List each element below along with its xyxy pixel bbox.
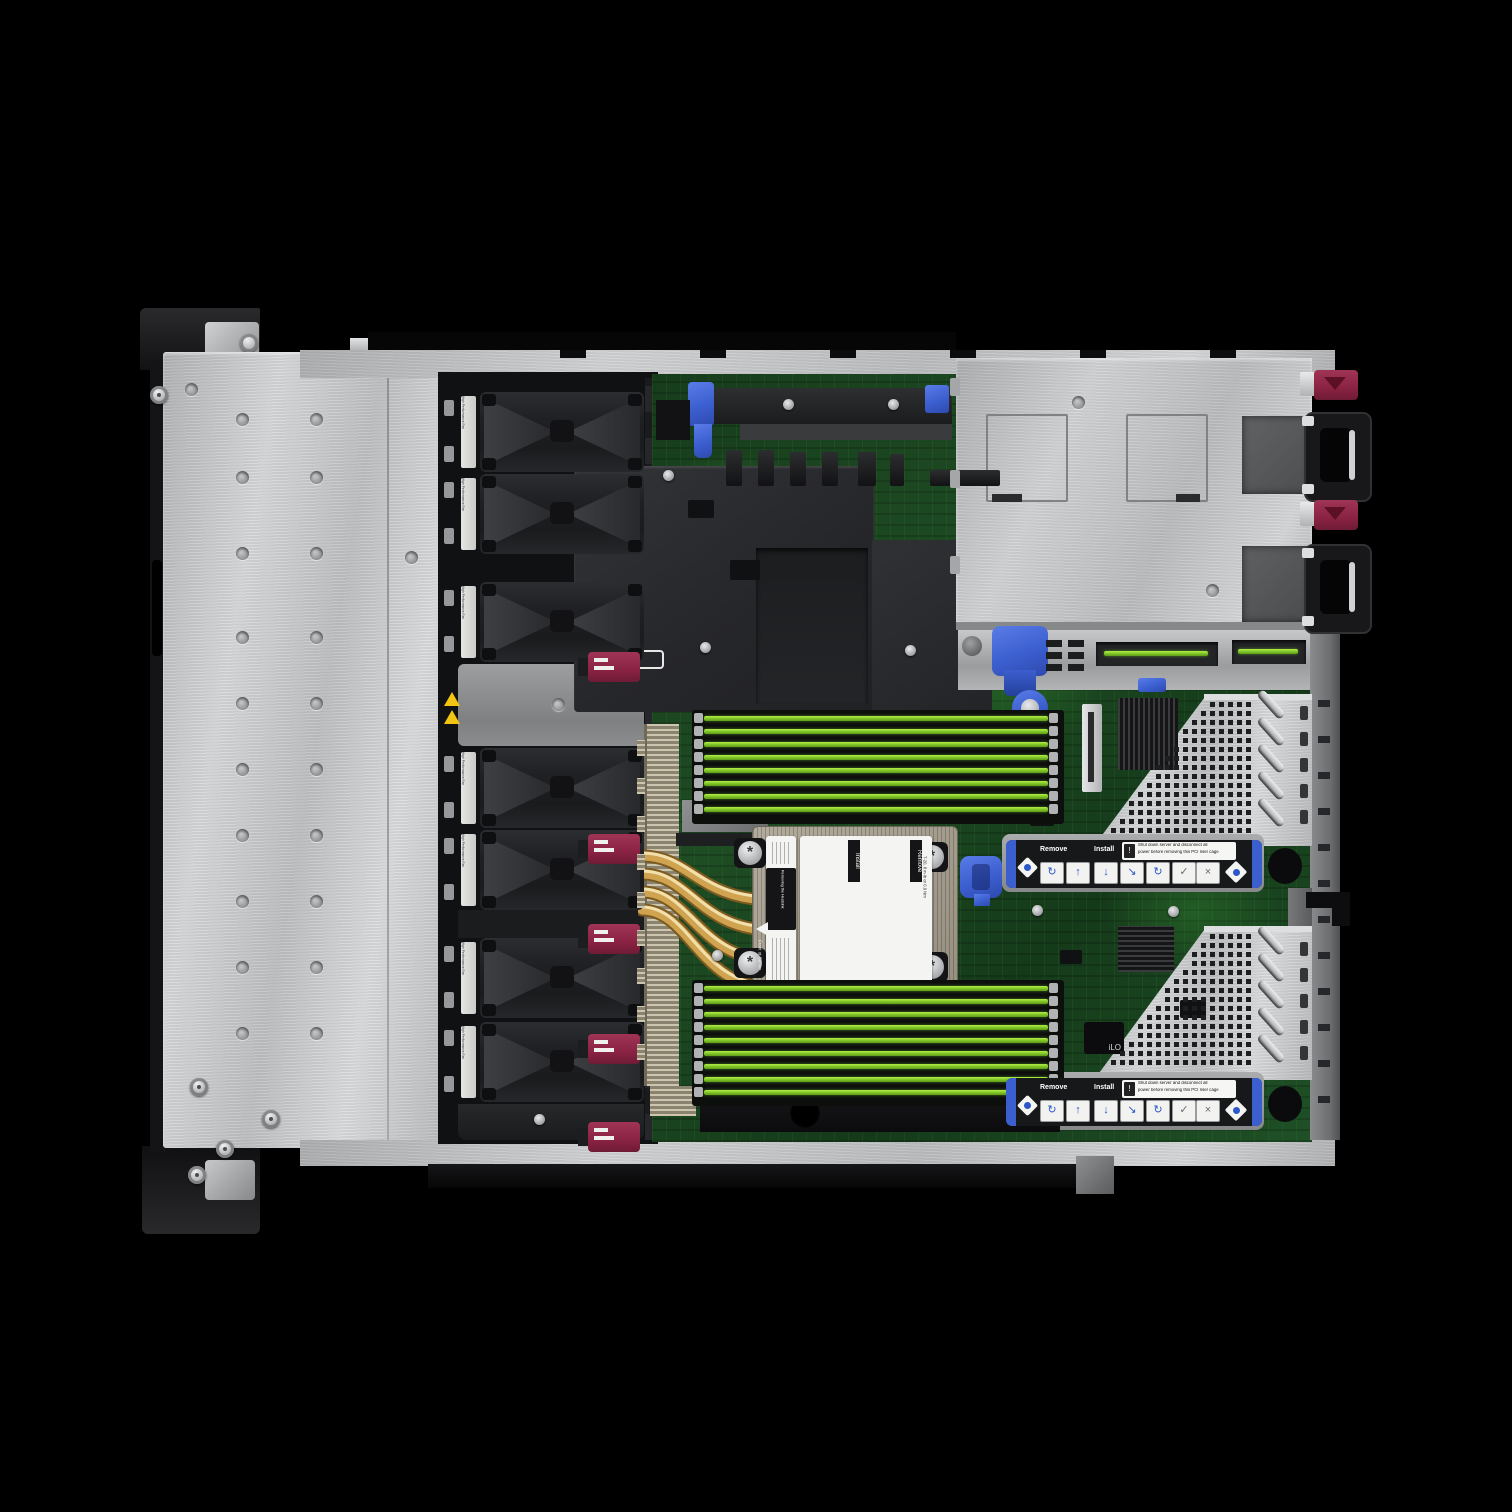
riser-louver-slot xyxy=(1256,952,1285,983)
dimm-slot xyxy=(704,742,1048,747)
riser-perforation xyxy=(1219,1006,1224,1011)
rear-edge-vent xyxy=(1318,1060,1330,1067)
fin-stack-spur xyxy=(637,816,645,832)
riser-perforation xyxy=(1201,979,1206,984)
fan-latch-nub xyxy=(444,884,454,900)
riser-perforation xyxy=(1210,934,1215,939)
fan-latch-nub xyxy=(444,756,454,772)
dimm-slot xyxy=(704,755,1048,760)
fin-stack-spur xyxy=(637,930,645,946)
riser-perforation xyxy=(1174,765,1179,770)
riser-perforation xyxy=(1201,756,1206,761)
riser-perforation xyxy=(1237,765,1242,770)
dimm-latch xyxy=(694,765,703,775)
dimm-latch xyxy=(694,1061,703,1071)
fan-latch-nub xyxy=(444,802,454,818)
riser-perforation xyxy=(1228,738,1233,743)
riser-perforation xyxy=(1147,1024,1152,1029)
riser-perforation xyxy=(1246,988,1251,993)
cover-hole xyxy=(310,961,323,974)
riser-perforation xyxy=(1237,1051,1242,1056)
riser-perforation xyxy=(1210,801,1215,806)
riser-perforation xyxy=(1156,1015,1161,1020)
riser-perforation xyxy=(1210,702,1215,707)
riser-perforation xyxy=(1174,756,1179,761)
riser-perforation xyxy=(1237,819,1242,824)
riser-perforation xyxy=(1147,792,1152,797)
cover-hole xyxy=(236,631,249,644)
rear-edge-vent xyxy=(1318,808,1330,815)
riser-pictogram: × xyxy=(1196,862,1220,884)
fan-blade xyxy=(568,398,640,466)
cover-hole xyxy=(236,895,249,908)
fan-corner-mount xyxy=(482,458,496,470)
riser-perforation xyxy=(1156,1042,1161,1047)
riser-pictogram: ↑ xyxy=(1066,1100,1090,1122)
riser-perforation xyxy=(1201,774,1206,779)
generated-details: High Performance FanHigh Performance Fan… xyxy=(0,0,1512,1512)
riser-kite-dot-icon xyxy=(1024,1102,1031,1109)
riser-perforation xyxy=(1147,1033,1152,1038)
dimm-latch xyxy=(694,1022,703,1032)
dimm-latch xyxy=(694,726,703,736)
cover-hole xyxy=(405,551,418,564)
dimm-slot xyxy=(704,1012,1048,1017)
riser-perforation xyxy=(1183,747,1188,752)
riser-perforation xyxy=(1165,774,1170,779)
riser-perforation xyxy=(1228,961,1233,966)
cover-screw xyxy=(190,1078,208,1096)
riser-perforation xyxy=(1192,765,1197,770)
riser-perforation xyxy=(1219,729,1224,734)
riser-perforation xyxy=(1147,810,1152,815)
riser-perforation xyxy=(1237,970,1242,975)
riser-kite-dot-icon xyxy=(1233,1107,1240,1114)
riser-perforation xyxy=(1228,801,1233,806)
riser-perforation xyxy=(1210,774,1215,779)
riser-perforation xyxy=(1246,1033,1251,1038)
riser-perforation xyxy=(1192,1006,1197,1011)
riser-perforation xyxy=(1174,783,1179,788)
riser-perforation xyxy=(1210,1024,1215,1029)
cover-hole xyxy=(310,697,323,710)
fan-label-text: High Performance Fan xyxy=(461,752,464,822)
riser-perforation xyxy=(1228,729,1233,734)
riser-perforation xyxy=(1174,828,1179,833)
riser-warning-box: !Shut down server and disconnect allpowe… xyxy=(1122,842,1236,860)
fan-blade xyxy=(568,588,640,656)
pcb-standoff-screw xyxy=(1032,905,1043,916)
riser-perforation xyxy=(1219,801,1224,806)
cover-screw-center xyxy=(269,1117,273,1121)
riser-perforation xyxy=(1210,828,1215,833)
riser-perforation xyxy=(1210,988,1215,993)
riser-perforation xyxy=(1129,1051,1134,1056)
riser-perforation xyxy=(1237,702,1242,707)
cover-screw xyxy=(262,1110,280,1128)
fan-hub xyxy=(550,966,574,988)
rear-edge-vent xyxy=(1318,952,1330,959)
riser-perforation xyxy=(1237,783,1242,788)
fan-hub xyxy=(550,776,574,798)
riser-perforation xyxy=(1174,747,1179,752)
riser-perforation xyxy=(1201,1024,1206,1029)
riser-perforation xyxy=(1201,943,1206,948)
riser-perforation xyxy=(1156,1051,1161,1056)
riser-perforation xyxy=(1219,711,1224,716)
riser-perforation xyxy=(1219,765,1224,770)
cover-screw xyxy=(216,1140,234,1158)
cover-hole xyxy=(310,763,323,776)
riser-perforation xyxy=(1174,1015,1179,1020)
dimm-slot xyxy=(704,807,1048,812)
riser-perforation xyxy=(1246,711,1251,716)
psu-release-tab xyxy=(1314,500,1358,530)
fan-latch-nub xyxy=(444,528,454,544)
riser-perforation xyxy=(1183,1024,1188,1029)
rear-edge-vent xyxy=(1318,916,1330,923)
riser-perforation xyxy=(1237,756,1242,761)
riser-perforation xyxy=(1201,765,1206,770)
dimm-slot xyxy=(704,1064,1048,1069)
riser-perforation xyxy=(1228,952,1233,957)
riser-perforation xyxy=(1219,792,1224,797)
riser-perforation xyxy=(1201,1006,1206,1011)
fan-power-connector xyxy=(588,1122,640,1152)
riser-perforation xyxy=(1210,961,1215,966)
dimm-latch xyxy=(694,1048,703,1058)
cover-hole xyxy=(236,961,249,974)
fan-module-label: High Performance Fan xyxy=(461,586,476,658)
riser-perforation xyxy=(1210,783,1215,788)
psu-release-tab xyxy=(1314,370,1358,400)
riser-perforation xyxy=(1219,738,1224,743)
bracket-vent xyxy=(1046,640,1062,647)
fan-blade xyxy=(568,754,640,822)
riser-perforation xyxy=(1156,810,1161,815)
rear-edge-vent xyxy=(1318,844,1330,851)
riser-perforation xyxy=(1219,747,1224,752)
riser-perforation xyxy=(1192,720,1197,725)
dimm-latch xyxy=(1049,983,1058,993)
cover-screw-center xyxy=(157,393,161,397)
riser-louver-slot xyxy=(1256,1006,1285,1037)
riser-perforation xyxy=(1120,1060,1125,1065)
riser-edge-vent xyxy=(1300,968,1308,982)
dimm-slot xyxy=(704,716,1048,721)
fin-stack-spur xyxy=(637,1006,645,1022)
cover-screw xyxy=(150,386,168,404)
riser-perforation xyxy=(1165,792,1170,797)
dimm-slot xyxy=(704,1038,1048,1043)
riser-perforation xyxy=(1129,828,1134,833)
dimm-latch xyxy=(1049,804,1058,814)
riser-perforation xyxy=(1237,738,1242,743)
riser-perforation xyxy=(1210,979,1215,984)
riser-perforation xyxy=(1219,1024,1224,1029)
fan-hub xyxy=(550,502,574,524)
riser-perforation xyxy=(1183,997,1188,1002)
riser-perforation xyxy=(1201,952,1206,957)
connector-stripe xyxy=(594,1048,614,1052)
dimm-latch xyxy=(694,804,703,814)
board-connector xyxy=(790,452,806,486)
riser-perforation xyxy=(1246,979,1251,984)
riser-pictogram: ↻ xyxy=(1040,862,1064,884)
riser-pictogram: ↻ xyxy=(1146,862,1170,884)
rear-edge-vent xyxy=(1318,700,1330,707)
riser-perforation xyxy=(1219,943,1224,948)
riser-perforation xyxy=(1120,828,1125,833)
riser-perforation xyxy=(1138,828,1143,833)
fan-power-connector xyxy=(588,1034,640,1064)
riser-pictogram: ↓ xyxy=(1094,1100,1118,1122)
riser-perforation xyxy=(1246,774,1251,779)
riser-perforation xyxy=(1228,774,1233,779)
psu-handle-hole xyxy=(1320,428,1352,482)
fan-corner-mount xyxy=(482,940,496,952)
riser-perforation xyxy=(1138,819,1143,824)
riser-perforation xyxy=(1237,952,1242,957)
psu-handle-clip xyxy=(1302,484,1314,494)
rear-edge-vent xyxy=(1318,736,1330,743)
fan-label-text: High Performance Fan xyxy=(461,586,464,656)
dimm-latch xyxy=(694,791,703,801)
connector-stripe xyxy=(594,938,614,942)
riser-perforation xyxy=(1219,1042,1224,1047)
dimm-latch xyxy=(694,752,703,762)
dimm-slot xyxy=(704,986,1048,991)
connector-stripe xyxy=(594,930,608,934)
riser-perforation xyxy=(1156,765,1161,770)
fan-corner-mount xyxy=(628,540,642,552)
riser-perforation xyxy=(1174,997,1179,1002)
riser-perforation xyxy=(1219,1060,1224,1065)
pcb-standoff-screw xyxy=(712,950,723,961)
riser-perforation xyxy=(1237,979,1242,984)
riser-perforation xyxy=(1219,997,1224,1002)
riser-perforation xyxy=(1237,1033,1242,1038)
cover-hole xyxy=(236,763,249,776)
riser-perforation xyxy=(1138,792,1143,797)
fan-module xyxy=(480,392,644,472)
riser-perforation xyxy=(1165,1033,1170,1038)
riser-perforation xyxy=(1156,1060,1161,1065)
riser-kite-dot-icon xyxy=(1024,864,1031,871)
riser-pictogram: ✓ xyxy=(1172,862,1196,884)
riser-perforation xyxy=(1156,828,1161,833)
riser-perforation xyxy=(1228,1006,1233,1011)
riser-edge-vent xyxy=(1300,1020,1308,1034)
riser-perforation xyxy=(1228,720,1233,725)
dimm-latch xyxy=(1049,1061,1058,1071)
fan-hub xyxy=(550,858,574,880)
riser-perforation xyxy=(1201,783,1206,788)
dimm-latch xyxy=(694,983,703,993)
riser-perforation xyxy=(1192,1060,1197,1065)
riser-perforation xyxy=(1201,711,1206,716)
cover-hole xyxy=(185,383,198,396)
bracket-vent xyxy=(1068,652,1084,659)
riser-perforation xyxy=(1174,1024,1179,1029)
riser-warning-line1: Shut down server and disconnect all xyxy=(1138,1081,1207,1085)
riser-perforation xyxy=(1138,1051,1143,1056)
riser-edge-vent xyxy=(1300,942,1308,956)
fan-latch-nub xyxy=(444,636,454,652)
dimm-slot xyxy=(704,1077,1048,1082)
riser-perforation xyxy=(1183,774,1188,779)
riser-pictogram: ↓ xyxy=(1094,862,1118,884)
riser-perforation xyxy=(1219,934,1224,939)
riser-install-label: Install xyxy=(1094,846,1114,853)
riser-pictogram: ↘ xyxy=(1120,862,1144,884)
fan-blade xyxy=(484,398,556,466)
pcb-ic-chip xyxy=(1060,950,1082,964)
riser-perforation xyxy=(1165,765,1170,770)
dimm-latch xyxy=(1049,1048,1058,1058)
cover-screw-center xyxy=(195,1173,199,1177)
riser-louver-slot xyxy=(1256,925,1285,956)
dimm-latch xyxy=(694,1035,703,1045)
riser-louver-slot xyxy=(1256,797,1285,828)
riser-perforation xyxy=(1129,801,1134,806)
riser-perforation xyxy=(1219,952,1224,957)
riser-perforation xyxy=(1219,774,1224,779)
riser-perforation xyxy=(1210,738,1215,743)
riser-perforation xyxy=(1174,810,1179,815)
riser-perforation xyxy=(1192,738,1197,743)
riser-perforation xyxy=(1120,1051,1125,1056)
dimm-latch xyxy=(1049,1035,1058,1045)
riser-perforation xyxy=(1174,774,1179,779)
riser-edge-vent xyxy=(1300,994,1308,1008)
riser-perforation xyxy=(1228,756,1233,761)
fin-stack-spur xyxy=(637,892,645,908)
riser-perforation xyxy=(1192,1015,1197,1020)
board-connector xyxy=(858,452,876,486)
riser-perforation xyxy=(1147,1051,1152,1056)
riser-perforation xyxy=(1165,783,1170,788)
cover-hole xyxy=(236,697,249,710)
riser-perforation xyxy=(1192,1042,1197,1047)
riser-edge-vent xyxy=(1300,1046,1308,1060)
riser-perforation xyxy=(1210,1033,1215,1038)
fan-latch-nub xyxy=(444,400,454,416)
riser-label-blue-cap xyxy=(1252,1078,1262,1126)
riser-perforation xyxy=(1228,970,1233,975)
fan-latch-nub xyxy=(444,446,454,462)
fan-module-label: High Performance Fan xyxy=(461,396,476,468)
fan-hub xyxy=(550,1050,574,1072)
riser-perforation xyxy=(1210,1042,1215,1047)
cover-hole xyxy=(236,547,249,560)
riser-perforation xyxy=(1174,1006,1179,1011)
riser-perforation xyxy=(1192,801,1197,806)
fan-corner-mount xyxy=(482,1024,496,1036)
riser-perforation xyxy=(1183,801,1188,806)
rail-notch xyxy=(1210,350,1236,358)
riser-perforation xyxy=(1246,801,1251,806)
riser-perforation xyxy=(1138,810,1143,815)
riser-kite-dot-icon xyxy=(1233,869,1240,876)
riser-perforation xyxy=(1192,961,1197,966)
riser-warning-line1: Shut down server and disconnect all xyxy=(1138,843,1207,847)
psu-handle-grip xyxy=(1349,430,1355,480)
riser-perforation xyxy=(1183,792,1188,797)
riser-perforation xyxy=(1246,1015,1251,1020)
riser-perforation xyxy=(1156,1006,1161,1011)
dimm-slot xyxy=(704,794,1048,799)
riser-perforation xyxy=(1147,1015,1152,1020)
fan-corner-mount xyxy=(482,476,496,488)
riser-edge-vent xyxy=(1300,732,1308,746)
riser-perforation xyxy=(1147,828,1152,833)
cover-screw-center xyxy=(223,1147,227,1151)
riser-perforation xyxy=(1219,819,1224,824)
riser-perforation xyxy=(1192,988,1197,993)
bracket-vent xyxy=(1046,652,1062,659)
cover-screw-center xyxy=(197,1085,201,1089)
riser-perforation xyxy=(1165,1015,1170,1020)
riser-label-blue-cap xyxy=(1006,1078,1016,1126)
riser-perforation xyxy=(1237,1042,1242,1047)
fan-latch-nub xyxy=(444,590,454,606)
riser-edge-vent xyxy=(1300,810,1308,824)
riser-perforation xyxy=(1237,1015,1242,1020)
riser-perforation xyxy=(1147,783,1152,788)
dimm-latch xyxy=(694,739,703,749)
fan-blade xyxy=(484,944,556,1012)
dimm-latch xyxy=(694,1087,703,1097)
riser-perforation xyxy=(1237,961,1242,966)
riser-perforation xyxy=(1183,729,1188,734)
connector-stripe xyxy=(594,840,608,844)
riser-perforation xyxy=(1228,979,1233,984)
riser-edge-vent xyxy=(1300,706,1308,720)
riser-perforation xyxy=(1147,1042,1152,1047)
pcb-standoff-screw xyxy=(1168,906,1179,917)
riser-perforation xyxy=(1183,810,1188,815)
riser-perforation xyxy=(1246,943,1251,948)
riser-perforation xyxy=(1138,1042,1143,1047)
connector-stripe xyxy=(594,1128,608,1132)
riser-perforation xyxy=(1165,819,1170,824)
riser-label-primary-riser: RemoveInstall↻↑↓↘↻✓×!Shut down server an… xyxy=(1006,840,1262,888)
riser-perforation xyxy=(1183,1042,1188,1047)
riser-perforation xyxy=(1246,747,1251,752)
riser-perforation xyxy=(1183,1033,1188,1038)
fan-corner-mount xyxy=(482,540,496,552)
riser-perforation xyxy=(1147,801,1152,806)
riser-perforation xyxy=(1192,729,1197,734)
riser-perforation xyxy=(1129,810,1134,815)
riser-perforation xyxy=(1165,828,1170,833)
riser-perforation xyxy=(1210,792,1215,797)
psu-cage-tab xyxy=(950,470,960,488)
riser-perforation xyxy=(1219,988,1224,993)
dimm-latch xyxy=(694,1074,703,1084)
riser-perforation xyxy=(1165,1006,1170,1011)
riser-perforation xyxy=(1156,801,1161,806)
riser-perforation xyxy=(1237,774,1242,779)
riser-perforation xyxy=(1246,729,1251,734)
riser-perforation xyxy=(1219,720,1224,725)
riser-louver-slot xyxy=(1256,979,1285,1010)
cover-hole xyxy=(310,895,323,908)
riser-perforation xyxy=(1174,1033,1179,1038)
riser-perforation xyxy=(1228,1033,1233,1038)
cover-screw xyxy=(188,1166,206,1184)
